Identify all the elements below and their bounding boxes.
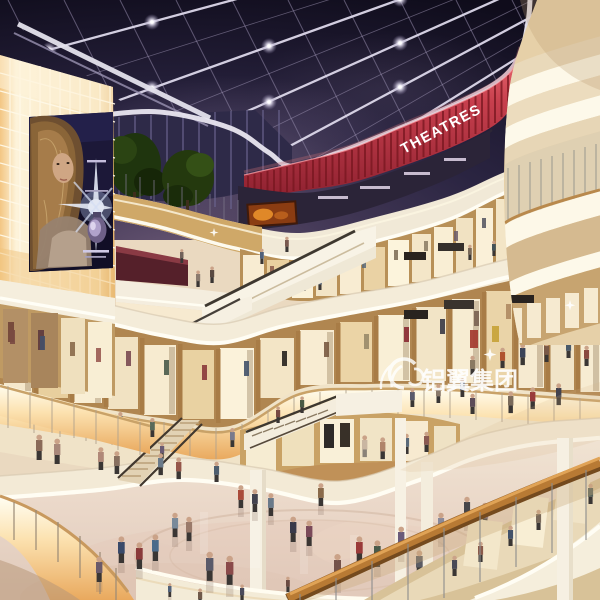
svg-text:铝翼集团: 铝翼集团 xyxy=(422,367,518,395)
